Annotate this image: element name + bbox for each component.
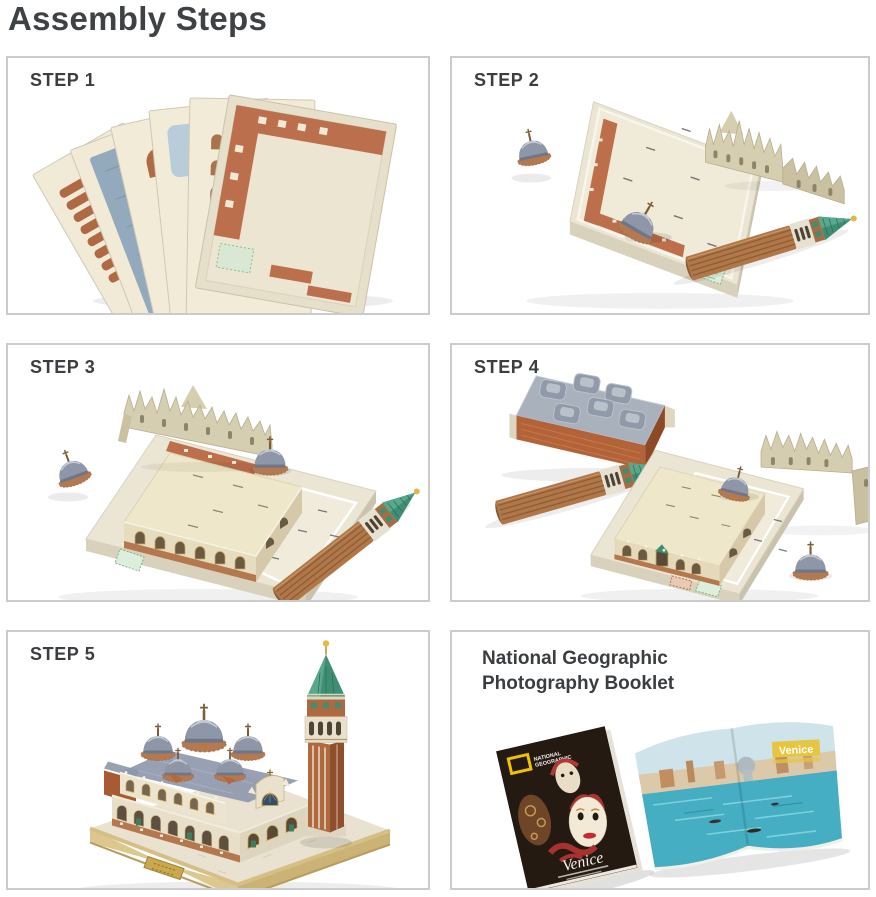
dome-piece-floating: [789, 542, 833, 581]
panel-step1: STEP 1: [6, 56, 430, 315]
step-label-3: STEP 3: [30, 357, 95, 378]
booklet-title-line2: Photography Booklet: [482, 671, 674, 696]
booklet-title-line1: National Geographic: [482, 646, 674, 671]
sheet-piazza-board: [195, 95, 396, 313]
photo-roof-and-sections: [452, 345, 868, 600]
spread-venice-label: Venice: [772, 739, 821, 763]
booklet-spread-open: Venice: [630, 708, 857, 883]
board-shadow: [526, 293, 793, 309]
gold-finial: [323, 640, 329, 646]
panel-booklet: National Geographic Photography Booklet: [450, 630, 870, 890]
panel-step2: STEP 2: [450, 56, 870, 315]
product-image-page: Assembly Steps STEP 1: [0, 0, 876, 897]
booklet-panel-title: National Geographic Photography Booklet: [482, 646, 674, 696]
panel-step3: STEP 3: [6, 343, 430, 602]
step-label-2: STEP 2: [474, 70, 539, 91]
dome-piece-floating: [48, 444, 93, 501]
photo-walls-on-board: [8, 345, 428, 600]
dome-piece-floating: [511, 125, 552, 182]
photo-fanned-puzzle-sheets: [8, 58, 428, 313]
page-title: Assembly Steps: [8, 0, 267, 38]
step-label-1: STEP 1: [30, 70, 95, 91]
booklet-cover: NATIONAL GEOGRAPHIC: [493, 723, 656, 888]
panel-step5: STEP 5: [6, 630, 430, 890]
panel-step4: STEP 4: [450, 343, 870, 602]
photo-board-first-pieces: [452, 58, 868, 313]
svg-text:Venice: Venice: [779, 744, 814, 758]
photo-completed-model: [8, 632, 428, 888]
step-label-5: STEP 5: [30, 644, 95, 665]
step-label-4: STEP 4: [474, 357, 539, 378]
